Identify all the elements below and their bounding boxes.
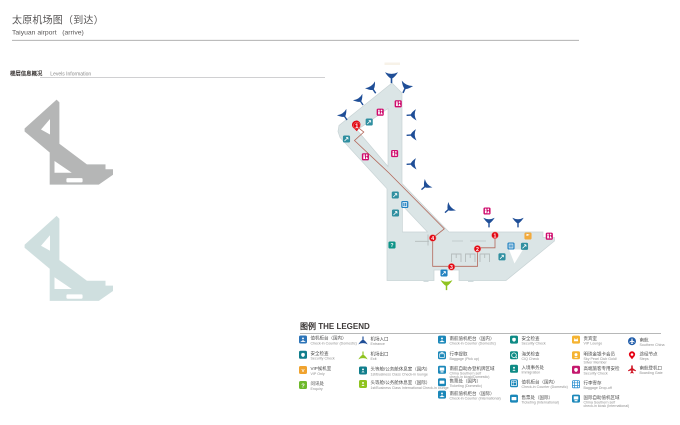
svg-text:Levels Information: Levels Information <box>50 71 91 77</box>
svg-text:楼层信息概况: 楼层信息概况 <box>10 69 43 77</box>
svg-text:Ticketing (International): Ticketing (International) <box>522 401 559 405</box>
svg-text:?: ? <box>390 243 393 249</box>
svg-text:Baggage (Pick up): Baggage (Pick up) <box>450 357 480 361</box>
svg-text:Enquiry: Enquiry <box>311 387 323 391</box>
svg-text:Check-in Counter (Domestic): Check-in Counter (Domestic) <box>522 385 568 389</box>
svg-text:Security Check: Security Check <box>522 342 546 346</box>
svg-text:Silver Member: Silver Member <box>584 361 608 365</box>
svg-text:Immigration: Immigration <box>522 371 541 375</box>
svg-text:Check-in Counter (Internation: Check-in Counter (International) <box>450 397 501 401</box>
svg-text:Check-in Counter (Domestic): Check-in Counter (Domestic) <box>311 341 357 345</box>
svg-text:VIP Lounge: VIP Lounge <box>584 342 603 346</box>
svg-text:Baggage Drop-off: Baggage Drop-off <box>584 386 612 390</box>
svg-text:Security Check: Security Check <box>311 357 335 361</box>
svg-text:Entrance: Entrance <box>371 342 385 346</box>
svg-text:Security Check: Security Check <box>584 372 608 376</box>
svg-text:Exit: Exit <box>371 357 377 361</box>
svg-text:4: 4 <box>431 236 434 242</box>
svg-text:图例 THE LEGEND: 图例 THE LEGEND <box>300 321 370 331</box>
svg-text:3: 3 <box>450 265 453 271</box>
svg-text:VIP Only: VIP Only <box>311 372 325 376</box>
svg-text:2: 2 <box>476 247 479 253</box>
svg-text:CIQ Check: CIQ Check <box>522 357 540 361</box>
svg-text:check-in kiosk (International): check-in kiosk (International) <box>584 404 630 408</box>
svg-text:Steps: Steps <box>640 357 649 361</box>
svg-text:1st/Business Class Check-in lo: 1st/Business Class Check-in lounge <box>371 372 428 376</box>
svg-text:太原机场图（到达）: 太原机场图（到达） <box>12 14 104 27</box>
svg-text:Taiyuan airport (arrive): Taiyuan airport (arrive) <box>12 30 84 37</box>
svg-text:1st/Business Class Internation: 1st/Business Class International Check-i… <box>371 386 449 390</box>
svg-text:Boarding Gate: Boarding Gate <box>640 371 663 375</box>
svg-text:Ticketing (Domestic): Ticketing (Domestic) <box>450 384 483 388</box>
svg-text:?: ? <box>301 383 305 389</box>
svg-text:Southern China: Southern China <box>640 343 665 347</box>
svg-text:Check-in Counter (Domestic): Check-in Counter (Domestic) <box>450 342 496 346</box>
svg-text:1: 1 <box>494 234 497 240</box>
